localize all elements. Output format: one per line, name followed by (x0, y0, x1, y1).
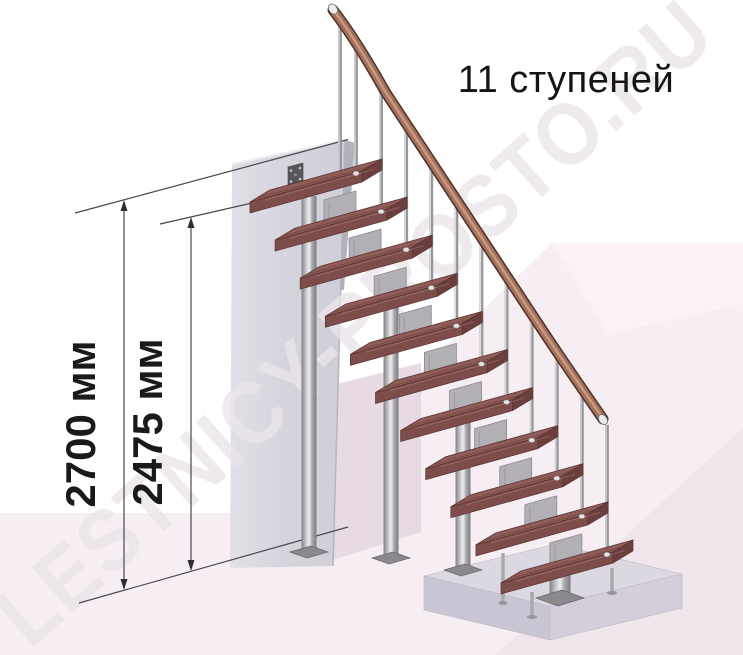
page-title: 11 ступеней (458, 59, 674, 101)
dimension-label-2475: 2475 мм (124, 338, 171, 505)
leg-foot (527, 615, 537, 619)
staircase-illustration: LESTNICY-PROSTO.RU 2700 мм 2475 мм 11 ст… (0, 0, 743, 655)
dimension-label-2700: 2700 мм (57, 340, 104, 507)
support-column (302, 196, 317, 552)
support-column (456, 416, 471, 570)
staircase-diagram-page: LESTNICY-PROSTO.RU 2700 мм 2475 мм 11 ст… (0, 0, 743, 655)
leg-foot (499, 601, 508, 605)
leg-foot (607, 591, 617, 595)
